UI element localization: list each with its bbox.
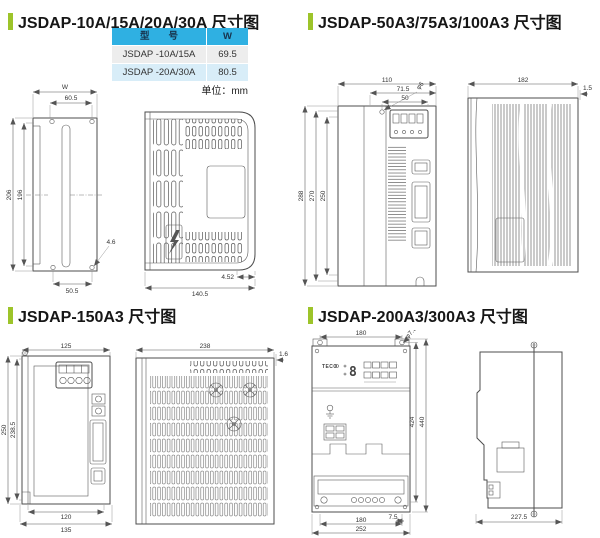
- title-accent-bar: [308, 307, 313, 324]
- spec-table-header-row: 型 号 W: [112, 28, 248, 46]
- table-row: JSDAP -10A/15A 69.5: [112, 46, 248, 64]
- dim-bezel-thickness: 1.6: [279, 351, 288, 358]
- brand-logo: TECO: [322, 364, 338, 370]
- model-cell: JSDAP -10A/15A: [112, 46, 207, 63]
- spec-table-header-model: 型 号: [112, 28, 207, 45]
- mounting-screw: [318, 340, 323, 345]
- terminal-strip: [314, 476, 408, 506]
- bottom-notch: [416, 277, 424, 286]
- dim-hole-span-bottom: 180: [356, 517, 367, 524]
- dim-width-bottom: 252: [356, 526, 367, 533]
- mounting-hole: [50, 119, 54, 123]
- spec-table-header-w: W: [207, 28, 248, 45]
- dim-height-mounting: 250: [320, 190, 327, 201]
- dim-hole-span-bottom: 50.5: [66, 288, 79, 295]
- dim-depth: 182: [518, 77, 529, 84]
- br-side-view-drawing: 227.5: [462, 330, 600, 538]
- connector: [91, 468, 105, 484]
- bl-front-view-drawing: 125 250 238.5 120 135: [0, 342, 140, 538]
- section-title-text: JSDAP-200A3/300A3 尺寸图: [318, 303, 528, 327]
- w-cell: 80.5: [207, 64, 248, 81]
- dim-depth: 227.5: [511, 514, 528, 521]
- dim-height-body: 270: [309, 190, 316, 201]
- vent-slots-left: [153, 119, 183, 263]
- connector: [90, 420, 106, 464]
- tr-side-view-drawing: 182 1.5: [446, 76, 600, 298]
- dim-hole-span-top: 60.5: [65, 95, 78, 102]
- nameplate-label: [497, 448, 524, 472]
- dim-mounting-width: 120: [61, 514, 72, 521]
- section-title-text: JSDAP-150A3 尺寸图: [18, 303, 176, 327]
- dim-depth: 238: [200, 343, 211, 350]
- vent-slots-top: [190, 361, 268, 373]
- dim-height-outer: 250: [1, 424, 8, 435]
- dim-hole-dia: 4.6: [106, 239, 115, 246]
- w-cell: 69.5: [207, 46, 248, 63]
- keypad-buttons: [364, 362, 397, 382]
- dim-hole-offset: 7.5: [388, 514, 397, 521]
- dim-height-outer: 440: [419, 416, 426, 427]
- dim-hole-dia: φ7.5: [404, 330, 418, 340]
- vent-slots-bottom: [185, 232, 243, 262]
- seven-segment-display: 8: [349, 365, 357, 380]
- dim-mounting-height: 424: [409, 416, 416, 427]
- mounting-hole: [380, 110, 384, 114]
- spec-table: 型 号 W JSDAP -10A/15A 69.5 JSDAP -20A/30A…: [112, 28, 248, 82]
- dim-width-top: 125: [61, 343, 72, 350]
- heatsink-fins: [492, 104, 572, 266]
- vent-slats: [388, 146, 406, 242]
- connector: [92, 406, 105, 416]
- title-accent-bar: [308, 13, 313, 30]
- dim-hole-dia: φ6: [415, 80, 426, 91]
- section-title-text: JSDAP-50A3/75A3/100A3 尺寸图: [318, 9, 562, 33]
- nameplate-label: [207, 166, 245, 218]
- terminal-block: [324, 424, 346, 440]
- vent-grille: [150, 376, 268, 518]
- dim-width-bottom: 135: [61, 527, 72, 534]
- dim-foot-depth: 4.52: [221, 274, 234, 281]
- dim-bezel-thickness: 1.5: [583, 85, 592, 92]
- dim-hole-span-top: 180: [356, 330, 367, 337]
- dim-depth: 140.5: [192, 291, 209, 298]
- mounting-hole: [51, 265, 55, 269]
- ground-symbol: [326, 405, 334, 418]
- mounting-hole: [90, 265, 94, 269]
- tr-front-view-drawing: 110 71.5 50 φ6 288 270 250: [298, 76, 448, 298]
- section-title-50a3: JSDAP-50A3/75A3/100A3 尺寸图: [308, 9, 562, 33]
- page: JSDAP-10A/15A/20A/30A 尺寸图 JSDAP-50A3/75A…: [0, 0, 600, 538]
- dim-width-2: 71.5: [397, 86, 410, 93]
- tl-side-view-drawing: 4.52 140.5: [133, 86, 300, 298]
- title-accent-bar: [8, 307, 13, 324]
- dim-height-outer: 206: [6, 189, 13, 200]
- dim-height-inner: 238.5: [10, 421, 17, 438]
- title-accent-bar: [8, 13, 13, 30]
- dim-width-w: W: [62, 84, 69, 91]
- section-title-150a3: JSDAP-150A3 尺寸图: [8, 303, 176, 327]
- mounting-hole: [90, 119, 94, 123]
- section-title-200a3: JSDAP-200A3/300A3 尺寸图: [308, 303, 528, 327]
- bl-side-view-drawing: 238 1.6: [128, 342, 302, 538]
- dim-width: 110: [382, 77, 393, 84]
- terminal-block: [487, 482, 500, 498]
- connector: [92, 394, 105, 404]
- dim-height-inner: 196: [17, 189, 24, 200]
- dim-height-outer: 288: [298, 190, 305, 201]
- br-front-view-drawing: TECO 8 180 φ7.5 424: [300, 330, 462, 538]
- vent-slots-top: [185, 119, 243, 149]
- tl-front-view-drawing: W 60.5 206 196 50.5 4.6: [0, 78, 135, 296]
